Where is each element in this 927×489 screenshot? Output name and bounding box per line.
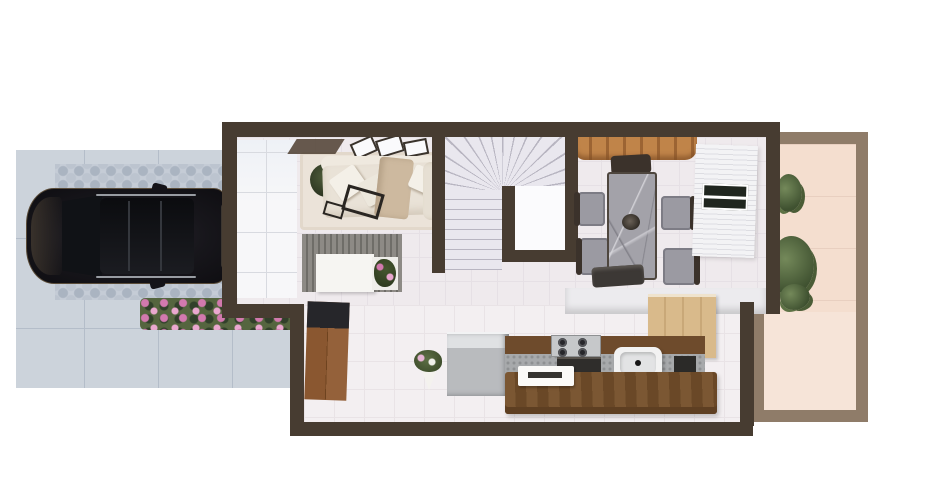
dining-chair — [663, 248, 696, 285]
range-hood — [591, 264, 644, 288]
burner — [558, 348, 567, 357]
stair-void — [502, 186, 578, 262]
wall-south — [290, 422, 753, 436]
console-planter — [372, 257, 398, 290]
suv-roof-glass — [100, 198, 194, 274]
winder-treads — [445, 137, 565, 193]
burner — [578, 338, 587, 347]
chair-back — [576, 238, 582, 275]
straight-flight — [445, 190, 502, 270]
wall-kitchen-east — [740, 302, 754, 426]
floor-plan-render — [0, 0, 927, 489]
suv-roof-rail — [96, 276, 196, 278]
wall-dining-east — [766, 122, 780, 314]
dining-chair — [578, 192, 605, 226]
suv-windshield — [62, 195, 102, 277]
suv-roof-rail — [96, 194, 196, 196]
wall-stair-east — [565, 122, 578, 190]
wall-stair-west — [432, 122, 445, 273]
patio-wall-bottom — [752, 410, 868, 422]
parked-suv — [26, 188, 230, 284]
suv-sunroof-seam — [128, 201, 130, 271]
door-glass-panes — [702, 183, 749, 211]
suv-sunroof-seam — [160, 201, 162, 271]
dining-chair — [661, 196, 692, 230]
serving-tray — [518, 366, 574, 386]
wall-west-lower — [290, 304, 304, 436]
table-centerpiece — [622, 214, 640, 230]
burner — [558, 338, 567, 347]
patio-wall-right — [856, 132, 868, 422]
burner — [578, 348, 587, 357]
refrigerator — [447, 332, 509, 396]
tv-console — [316, 254, 374, 292]
wall-west — [222, 122, 237, 318]
patio-wall-top — [780, 132, 868, 144]
ceiling-art-wedge — [287, 139, 344, 154]
wood-vanity-cabinet — [304, 301, 349, 400]
wardrobe-panels — [237, 140, 297, 298]
floor-bouquet — [414, 350, 442, 390]
chair-back — [574, 192, 580, 226]
patio-floor-lower — [764, 312, 856, 410]
wall-north — [222, 122, 780, 137]
suv-hood — [31, 197, 65, 275]
